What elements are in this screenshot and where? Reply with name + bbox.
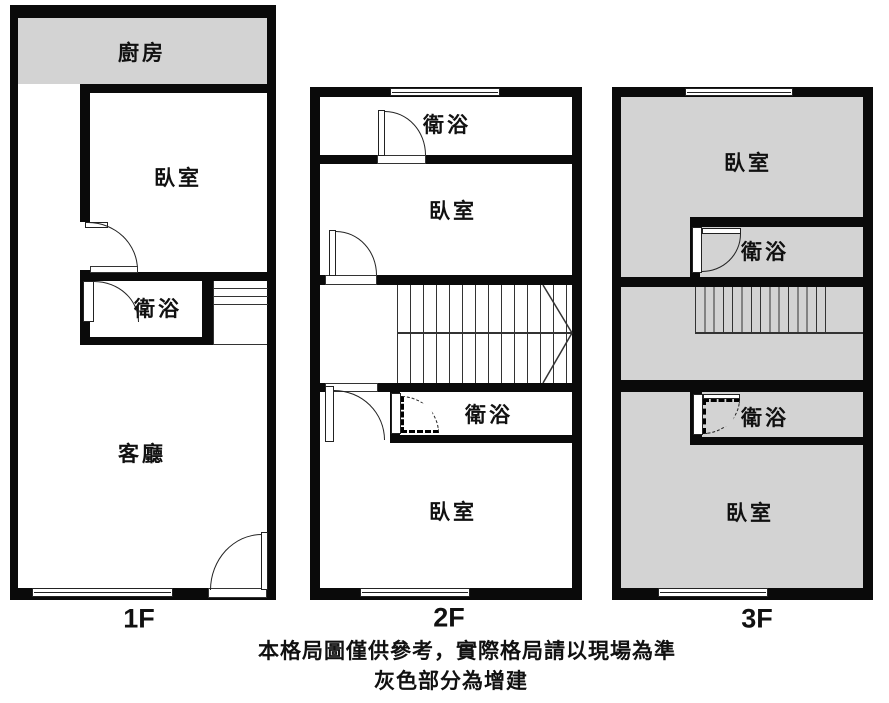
room-label-bathroom-top: 衛浴 — [741, 236, 789, 266]
room-label-bedroom-top: 臥室 — [429, 195, 477, 225]
room-label-bathroom-bottom: 衛浴 — [741, 402, 789, 432]
wall — [80, 337, 213, 345]
wall — [390, 435, 582, 443]
wall — [80, 84, 90, 222]
floor-label-3f: 3F — [741, 604, 773, 635]
door-leaf — [693, 394, 703, 435]
staircase — [695, 287, 834, 333]
door-swing-icon — [401, 396, 439, 433]
window-symbol — [658, 588, 768, 597]
wall — [310, 155, 582, 164]
door-leaf — [378, 110, 385, 156]
door-swing-icon — [334, 390, 385, 440]
door-swing-icon — [385, 111, 426, 155]
floor-label-2f: 2F — [433, 603, 465, 634]
window-symbol — [390, 88, 500, 96]
door-leaf — [83, 281, 94, 322]
staircase-start — [213, 281, 267, 345]
door-threshold — [325, 275, 377, 285]
wall — [612, 277, 873, 287]
room-label-bedroom-bottom: 臥室 — [429, 496, 477, 526]
room-label-bedroom-top: 臥室 — [724, 147, 772, 177]
floor-plan: 廚房 臥室 衛浴 客廳 1F 衛浴 臥室 衛浴 臥室 2F — [0, 0, 889, 703]
wall — [202, 281, 213, 341]
door-leaf — [261, 532, 268, 590]
door-threshold — [90, 266, 138, 273]
door-leaf — [325, 386, 334, 442]
room-label-living-room: 客廳 — [118, 438, 166, 468]
door-leaf — [391, 393, 401, 434]
room-label-bedroom: 臥室 — [154, 162, 202, 192]
room-label-bathroom-bottom: 衛浴 — [465, 399, 513, 429]
wall — [267, 5, 276, 600]
door-leaf — [329, 230, 336, 276]
wall — [690, 217, 873, 227]
wall — [10, 5, 276, 18]
room-label-bathroom-top: 衛浴 — [423, 109, 471, 139]
wall — [80, 272, 276, 281]
door-swing-icon — [94, 281, 139, 322]
door-leaf — [692, 227, 702, 273]
window-symbol — [685, 88, 793, 96]
stair-direction-lines — [530, 283, 575, 385]
room-label-kitchen: 廚房 — [118, 37, 166, 67]
wall — [690, 437, 873, 445]
room-label-bathroom: 衛浴 — [134, 293, 182, 323]
window-symbol — [32, 588, 173, 597]
addition-note-text: 灰色部分為增建 — [374, 665, 528, 695]
wall — [863, 87, 873, 600]
wall — [10, 5, 18, 600]
wall — [612, 380, 873, 392]
stair-edge-line — [695, 332, 863, 334]
disclaimer-text: 本格局圖僅供參考，實際格局請以現場為準 — [258, 635, 676, 665]
wall — [612, 87, 621, 600]
door-swing-icon — [88, 222, 138, 270]
door-swing-icon — [210, 534, 262, 590]
wall — [80, 84, 276, 93]
floor-label-1f: 1F — [123, 604, 155, 635]
door-threshold — [377, 155, 426, 164]
room-label-bedroom-bottom: 臥室 — [726, 497, 774, 527]
door-swing-icon — [336, 231, 377, 275]
window-symbol — [360, 588, 470, 597]
